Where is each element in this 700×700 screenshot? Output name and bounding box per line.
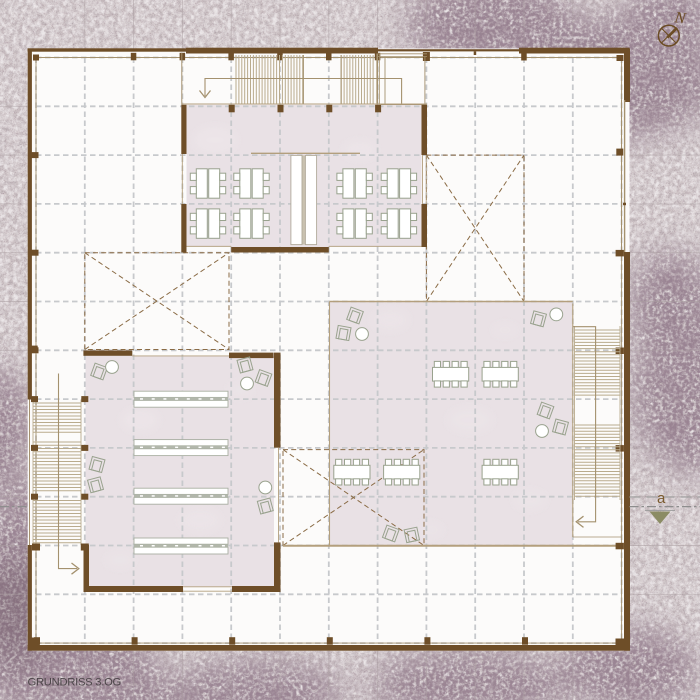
svg-text:a: a	[657, 490, 666, 507]
svg-text:GRUNDRISS 3.OG: GRUNDRISS 3.OG	[28, 677, 121, 689]
